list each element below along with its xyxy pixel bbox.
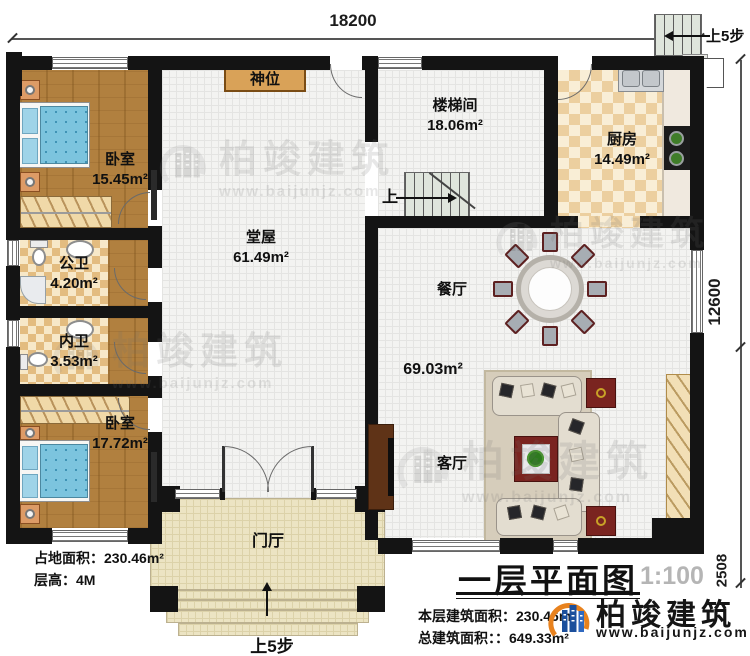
hall-label: 堂屋 61.49m²: [215, 228, 307, 267]
room-area: 3.53m²: [38, 352, 110, 372]
public-bath-label: 公卫 4.20m²: [38, 254, 110, 293]
floor-plan: 18200 12600 2508 上5步: [0, 0, 750, 656]
dining-label: 餐厅: [424, 280, 480, 300]
wall-segment: [6, 306, 162, 318]
dining-chair: [493, 281, 513, 297]
dining-chair: [542, 232, 558, 252]
nightstand: [20, 172, 40, 192]
brand-logo: [544, 590, 594, 650]
room-area: 18.06m²: [408, 116, 502, 136]
exterior-stairs-top-label: 上5步: [706, 27, 750, 47]
wall-segment: [365, 216, 578, 228]
floor-height-note: 层高：4M: [34, 570, 95, 590]
dining-chair: [542, 326, 558, 346]
stair-direction-arrow: [448, 193, 457, 203]
burner-icon: [669, 151, 684, 166]
toilet: [30, 240, 48, 248]
sink-basin: [622, 70, 640, 87]
bed-pillow: [22, 138, 38, 164]
room-name: 厨房: [580, 130, 664, 150]
wall-segment: [500, 538, 553, 554]
sofa-pillow: [499, 383, 514, 398]
entrance-arrow-line: [266, 591, 268, 616]
room-area: 14.49m²: [580, 150, 664, 170]
window: [52, 57, 128, 69]
burner-icon: [669, 131, 684, 146]
sofa-pillow: [569, 477, 584, 492]
side-cabinet: [666, 374, 692, 536]
stair-arrow-line: [396, 197, 450, 199]
nightstand: [20, 504, 40, 524]
dimension-line-top: [12, 38, 700, 40]
shrine-label: 神位: [224, 70, 306, 90]
kitchen-label: 厨房 14.49m²: [580, 130, 664, 169]
stairwell-label: 楼梯间 18.06m²: [408, 96, 502, 135]
wall-segment: [6, 56, 20, 240]
end-table-medallion: [596, 388, 606, 398]
toilet: [20, 354, 28, 370]
sofa-pillow: [507, 505, 522, 520]
room-name: 楼梯间: [408, 96, 502, 116]
nightstand: [20, 426, 40, 440]
sofa-pillow: [569, 447, 584, 462]
plan-scale: 1:100: [640, 562, 704, 591]
wall-segment: [578, 538, 656, 554]
window: [316, 489, 357, 499]
wall-segment: [6, 528, 52, 544]
foyer-label: 门厅: [238, 532, 298, 553]
wall-segment: [6, 384, 162, 396]
window: [378, 57, 422, 69]
dining-living-area-label: 69.03m²: [390, 360, 476, 381]
wall-segment: [148, 226, 162, 268]
brand-website: www.baijunjz.com: [596, 624, 749, 640]
wall-segment: [592, 56, 690, 70]
wall-segment: [150, 586, 178, 612]
dining-chair: [587, 281, 607, 297]
room-area: 15.45m²: [78, 170, 162, 190]
window: [553, 540, 578, 552]
bed-pillow: [22, 446, 38, 470]
room-name: 卧室: [78, 150, 162, 170]
stair-arrow-line: [673, 35, 710, 37]
room-area: 61.49m²: [215, 248, 307, 268]
room-name: 公卫: [38, 254, 110, 274]
stairs-up-label: 上: [380, 188, 400, 209]
kitchen-entry: [578, 216, 640, 228]
wall-segment: [544, 56, 558, 216]
wall-segment: [6, 347, 20, 544]
wall-segment: [357, 586, 385, 612]
window: [691, 250, 703, 333]
plant-icon: [527, 450, 544, 467]
sofa-pillow: [520, 383, 535, 398]
wall-segment: [378, 538, 412, 554]
site-area-note: 占地面积：230.46m²: [34, 548, 164, 568]
wall-segment: [148, 376, 162, 398]
dimension-top-label: 18200: [318, 11, 388, 31]
wall-segment: [690, 333, 704, 522]
bedroom-bottom-label: 卧室 17.72m²: [76, 414, 164, 453]
lamp-icon: [25, 428, 35, 438]
dining-table-top: [528, 267, 572, 311]
wardrobe: [20, 196, 112, 228]
foyer-step: [178, 623, 358, 636]
lamp-icon: [25, 509, 35, 519]
wall-segment: [652, 518, 704, 554]
end-table-medallion: [596, 516, 606, 526]
room-hall: [162, 70, 365, 500]
dimension-right-label: 12600: [705, 271, 725, 333]
room-name: 堂屋: [215, 228, 307, 248]
window: [412, 540, 500, 552]
wall-segment: [365, 56, 378, 142]
wall-segment: [148, 302, 162, 342]
window: [175, 489, 220, 499]
private-bath-label: 内卫 3.53m²: [38, 332, 110, 371]
bed-pillow: [22, 474, 38, 498]
window: [7, 240, 19, 266]
bedroom-top-label: 卧室 15.45m²: [78, 150, 162, 189]
window: [52, 530, 128, 542]
wall-segment: [422, 56, 558, 70]
lamp-icon: [25, 177, 35, 187]
window: [7, 320, 19, 347]
wall-segment: [6, 228, 162, 240]
room-area: 4.20m²: [38, 274, 110, 294]
stair-direction-arrow: [664, 31, 673, 41]
bed-pillow: [22, 108, 38, 134]
lamp-icon: [25, 85, 35, 95]
tv-panel: [151, 452, 157, 502]
wall-segment: [690, 56, 704, 250]
tv-screen: [388, 438, 394, 496]
room-name: 卧室: [76, 414, 164, 434]
entrance-arrow: [262, 582, 272, 591]
nightstand: [20, 80, 40, 100]
dimension-line-right: [740, 60, 742, 588]
room-area: 17.72m²: [76, 434, 164, 454]
sink-basin: [642, 70, 660, 87]
entrance-stairs-label: 上5步: [240, 636, 304, 656]
living-label: 客厅: [424, 454, 480, 474]
room-name: 内卫: [38, 332, 110, 352]
